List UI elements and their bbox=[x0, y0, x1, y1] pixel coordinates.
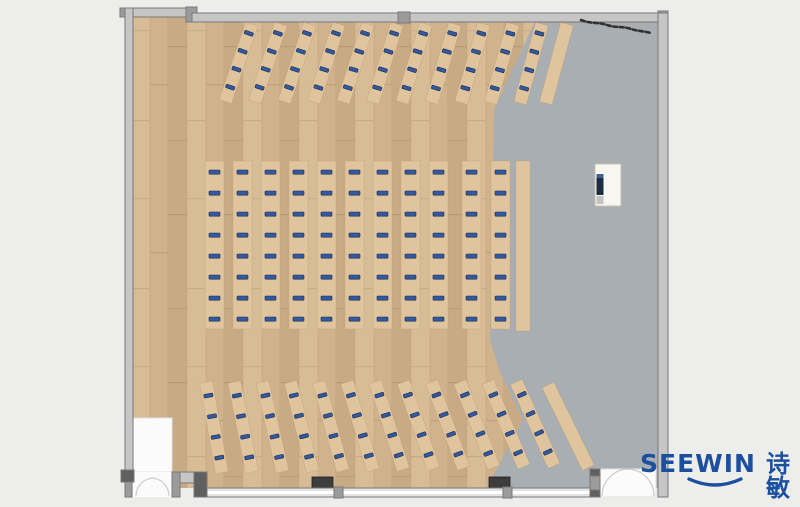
wall-cabinet bbox=[312, 477, 333, 489]
brand-name: SEEWIN bbox=[640, 451, 756, 476]
desk-surface bbox=[429, 161, 448, 329]
seat-marker bbox=[466, 254, 477, 258]
seat-marker bbox=[237, 170, 248, 174]
seat-marker bbox=[265, 296, 276, 300]
seat-marker bbox=[495, 275, 506, 279]
seat-marker bbox=[495, 212, 506, 216]
seat-marker bbox=[209, 191, 220, 195]
door-post bbox=[125, 482, 132, 497]
seat-marker bbox=[237, 212, 248, 216]
seat-marker bbox=[405, 296, 416, 300]
seat-marker bbox=[321, 275, 332, 279]
seat-marker bbox=[433, 317, 444, 321]
seat-marker bbox=[293, 296, 304, 300]
seat-marker bbox=[349, 212, 360, 216]
wall-mullion-bottom bbox=[334, 487, 343, 498]
seat-marker bbox=[466, 233, 477, 237]
desk-column bbox=[317, 161, 336, 329]
seat-marker bbox=[433, 170, 444, 174]
wall-top bbox=[192, 13, 668, 22]
desk-surface bbox=[233, 161, 252, 329]
seat-marker bbox=[237, 233, 248, 237]
desk-column bbox=[233, 161, 252, 329]
seat-marker bbox=[293, 191, 304, 195]
seat-marker bbox=[433, 212, 444, 216]
seat-marker bbox=[209, 254, 220, 258]
seat-marker bbox=[495, 191, 506, 195]
wall-mullion-bottom bbox=[503, 487, 512, 498]
podium bbox=[595, 164, 621, 206]
desk-column bbox=[205, 161, 224, 329]
wall-cap-left-door bbox=[121, 470, 134, 482]
seat-marker bbox=[237, 191, 248, 195]
seat-marker bbox=[349, 191, 360, 195]
seat-marker bbox=[466, 212, 477, 216]
seat-marker bbox=[265, 275, 276, 279]
seat-marker bbox=[265, 170, 276, 174]
seat-marker bbox=[321, 254, 332, 258]
wall-right bbox=[658, 13, 668, 497]
desk-surface bbox=[205, 161, 224, 329]
logo-swoosh-icon bbox=[686, 476, 744, 491]
seat-marker bbox=[433, 191, 444, 195]
seat-marker bbox=[209, 233, 220, 237]
seat-marker bbox=[377, 233, 388, 237]
seat-marker bbox=[209, 212, 220, 216]
seat-marker bbox=[349, 254, 360, 258]
desk-column bbox=[261, 161, 280, 329]
seat-marker bbox=[377, 317, 388, 321]
seat-marker bbox=[265, 212, 276, 216]
seat-marker bbox=[265, 317, 276, 321]
door-post-cap bbox=[590, 469, 600, 476]
seat-marker bbox=[377, 212, 388, 216]
seat-marker bbox=[405, 233, 416, 237]
seat-marker bbox=[237, 317, 248, 321]
seat-marker bbox=[466, 170, 477, 174]
seat-marker bbox=[293, 254, 304, 258]
seat-marker bbox=[209, 170, 220, 174]
seat-marker bbox=[495, 170, 506, 174]
door-alcove bbox=[133, 418, 172, 472]
brand-logo: SEEWIN 诗敏 bbox=[640, 451, 800, 500]
seat-marker bbox=[433, 296, 444, 300]
desk-surface bbox=[462, 161, 481, 329]
podium-screen-glow bbox=[597, 174, 604, 178]
seat-marker bbox=[405, 191, 416, 195]
seat-marker bbox=[405, 170, 416, 174]
floor-plan-canvas: SEEWIN 诗敏 bbox=[0, 0, 800, 507]
podium-base bbox=[597, 196, 604, 204]
seat-marker bbox=[237, 254, 248, 258]
door-opening bbox=[133, 472, 172, 497]
seat-marker bbox=[433, 233, 444, 237]
wall-left bbox=[125, 8, 133, 472]
desk-column bbox=[373, 161, 392, 329]
seat-marker bbox=[495, 317, 506, 321]
seat-marker bbox=[377, 254, 388, 258]
desk-column bbox=[345, 161, 364, 329]
seat-marker bbox=[293, 212, 304, 216]
desk-surface bbox=[261, 161, 280, 329]
seat-marker bbox=[265, 254, 276, 258]
seat-marker bbox=[321, 170, 332, 174]
seat-marker bbox=[349, 275, 360, 279]
seat-marker bbox=[237, 296, 248, 300]
seat-marker bbox=[495, 296, 506, 300]
seat-marker bbox=[377, 296, 388, 300]
seat-marker bbox=[349, 317, 360, 321]
seat-marker bbox=[321, 233, 332, 237]
seat-marker bbox=[433, 275, 444, 279]
seat-marker bbox=[349, 170, 360, 174]
door-post-cap bbox=[590, 490, 600, 497]
desk-column bbox=[491, 161, 510, 329]
floor-plan-drawing bbox=[0, 0, 800, 507]
seat-marker bbox=[237, 275, 248, 279]
seat-marker bbox=[495, 233, 506, 237]
seat-marker bbox=[405, 212, 416, 216]
seat-marker bbox=[349, 233, 360, 237]
desk-surface bbox=[289, 161, 308, 329]
seat-marker bbox=[321, 212, 332, 216]
seat-marker bbox=[405, 254, 416, 258]
seat-marker bbox=[293, 233, 304, 237]
seat-marker bbox=[466, 317, 477, 321]
desk-column bbox=[289, 161, 308, 329]
desk-surface bbox=[491, 161, 510, 329]
desk-column bbox=[462, 161, 481, 329]
wall-stub-corner bbox=[194, 472, 207, 497]
seat-marker bbox=[293, 275, 304, 279]
seat-marker bbox=[466, 296, 477, 300]
desk-sideboard bbox=[516, 161, 530, 331]
seat-marker bbox=[433, 254, 444, 258]
desk-column bbox=[401, 161, 420, 329]
desk-surface bbox=[317, 161, 336, 329]
seat-marker bbox=[405, 275, 416, 279]
seat-marker bbox=[466, 275, 477, 279]
seat-marker bbox=[265, 233, 276, 237]
seat-marker bbox=[265, 191, 276, 195]
seat-marker bbox=[377, 170, 388, 174]
seat-marker bbox=[321, 191, 332, 195]
seat-marker bbox=[495, 254, 506, 258]
desk-column bbox=[429, 161, 448, 329]
brand-name-cn: 诗敏 bbox=[766, 452, 800, 500]
seat-marker bbox=[293, 317, 304, 321]
wall-mullion-top bbox=[398, 12, 410, 23]
seat-marker bbox=[466, 191, 477, 195]
door-post bbox=[172, 472, 180, 497]
desk-surface bbox=[345, 161, 364, 329]
seat-marker bbox=[293, 170, 304, 174]
window-glazing bbox=[205, 491, 591, 494]
desk-surface bbox=[373, 161, 392, 329]
seat-marker bbox=[209, 275, 220, 279]
desk-surface bbox=[401, 161, 420, 329]
seat-marker bbox=[321, 296, 332, 300]
seat-marker bbox=[209, 296, 220, 300]
seat-marker bbox=[405, 317, 416, 321]
seat-marker bbox=[321, 317, 332, 321]
seat-marker bbox=[377, 191, 388, 195]
entry-door-left bbox=[133, 418, 172, 497]
seat-marker bbox=[349, 296, 360, 300]
seat-marker bbox=[209, 317, 220, 321]
seat-marker bbox=[377, 275, 388, 279]
